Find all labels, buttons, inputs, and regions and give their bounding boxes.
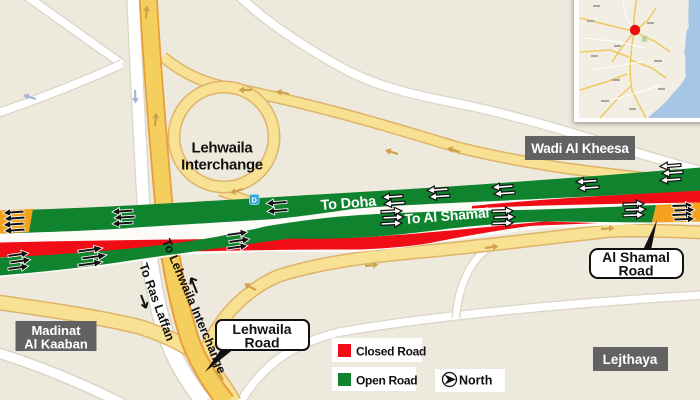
svg-text:Lejthaya: Lejthaya [603, 352, 658, 367]
svg-text:Interchange: Interchange [181, 157, 263, 174]
svg-text:North: North [459, 374, 492, 388]
svg-text:Open Road: Open Road [356, 374, 417, 388]
svg-text:Road: Road [619, 263, 654, 279]
svg-text:Wadi Al Kheesa: Wadi Al Kheesa [531, 141, 629, 156]
svg-text:Al Kaaban: Al Kaaban [24, 337, 88, 352]
svg-text:D: D [251, 196, 257, 205]
svg-text:Road: Road [245, 335, 280, 351]
svg-text:Closed Road: Closed Road [356, 345, 426, 359]
svg-text:Lehwaila: Lehwaila [192, 140, 254, 157]
